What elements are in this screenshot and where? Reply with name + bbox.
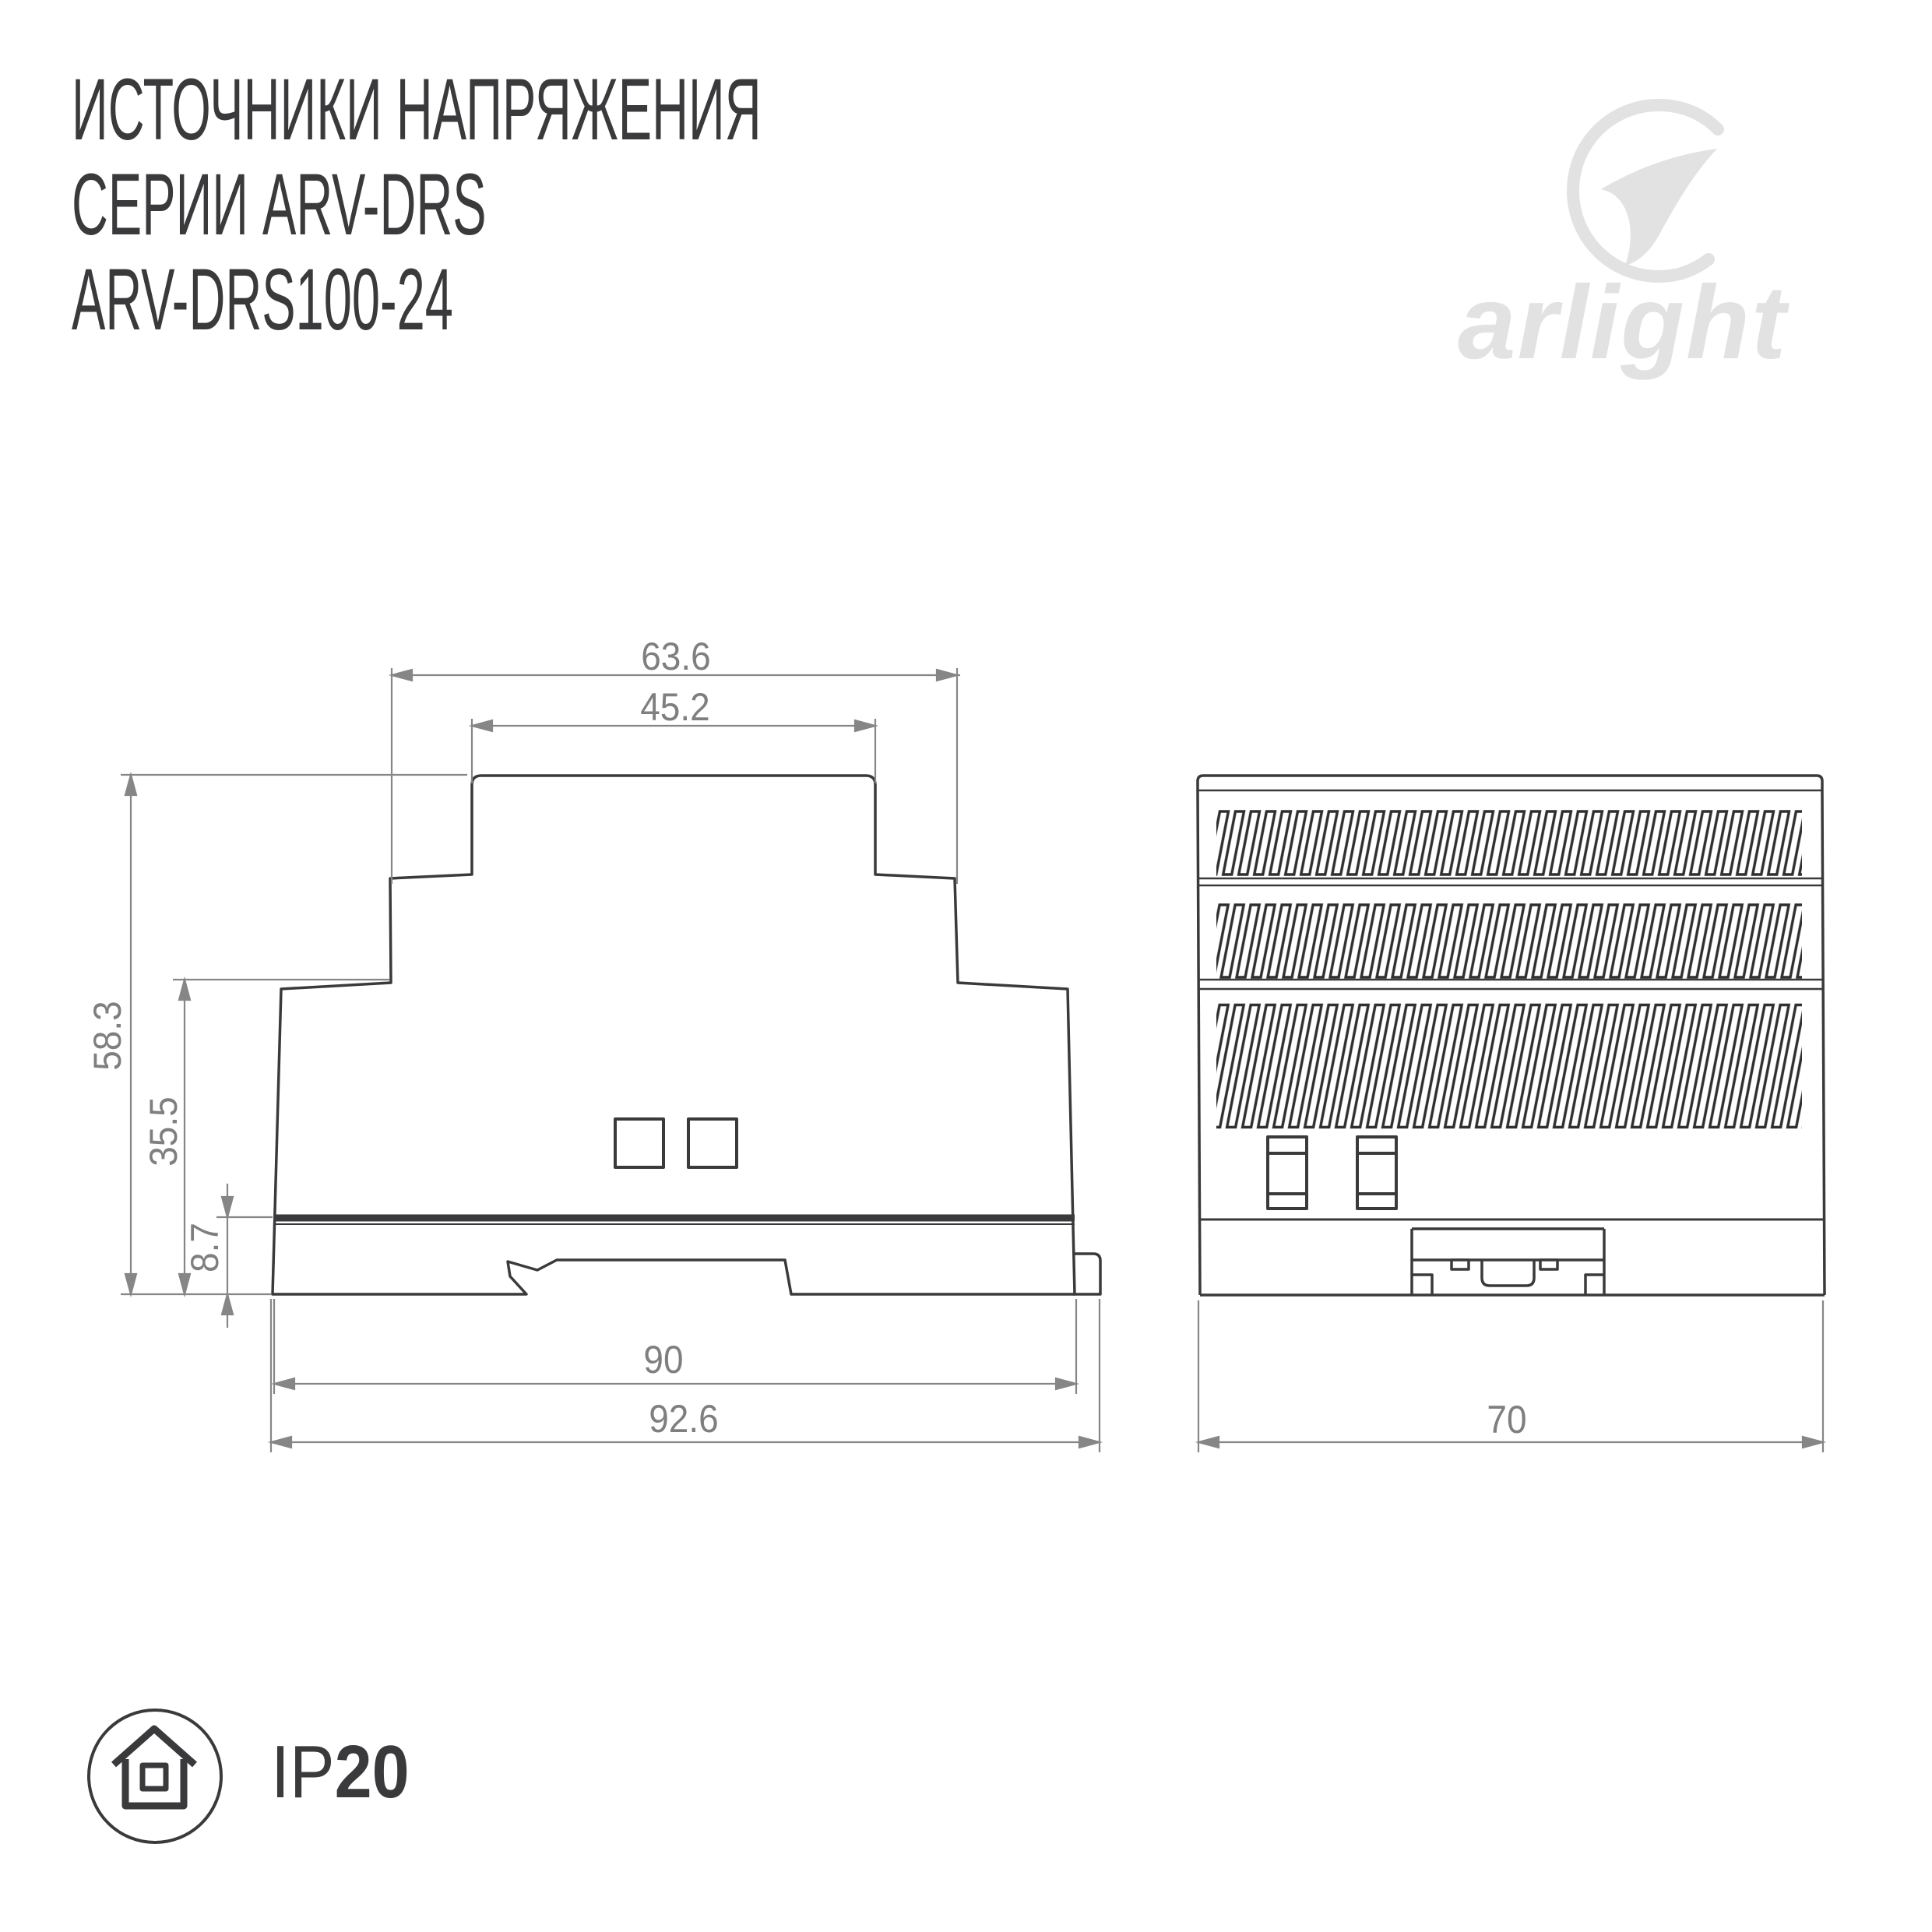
dim-label-height-base: 8.7 [185,1223,224,1272]
dim-label-width-body: 90 [643,1340,683,1379]
arlight-wordmark: arlight [1458,271,1787,375]
arlight-swoosh-icon [1573,105,1718,276]
side-view-drawing [273,776,1100,1294]
house-window [143,1765,166,1789]
page-title-line-1: ИСТОЧНИКИ НАПРЯЖЕНИЯ [72,66,762,153]
dim-label-top-outer: 63.6 [641,637,711,676]
dim-label-top-inner: 45.2 [640,688,710,727]
ip-rating-prefix: IP [271,1730,335,1814]
clip-tab [1073,1254,1100,1294]
front-switches [1268,1137,1396,1209]
front-din-clip [1412,1229,1604,1295]
dim-label-front-width: 70 [1487,1400,1526,1439]
dim-label-height-total: 58.3 [88,1001,127,1071]
page-title-line-3: ARV-DRS100-24 [72,256,453,343]
ip-rating-value: 20 [335,1730,410,1814]
ip20-house-icon [89,1710,221,1842]
terminal-square-right [688,1119,737,1167]
vent-band-bottom [1216,1003,1802,1129]
front-top-cap [1198,776,1822,790]
vent-band-top [1216,810,1802,876]
ip-rating-label: IP20 [271,1735,410,1810]
dim-label-width-total: 92.6 [649,1399,719,1438]
front-view-drawing [1198,776,1825,1295]
dim-label-height-body: 35.5 [144,1096,183,1167]
page-title-line-2: СЕРИИ ARV-DRS [72,161,487,248]
terminal-square-left [615,1119,663,1167]
vent-band-middle [1216,903,1802,979]
